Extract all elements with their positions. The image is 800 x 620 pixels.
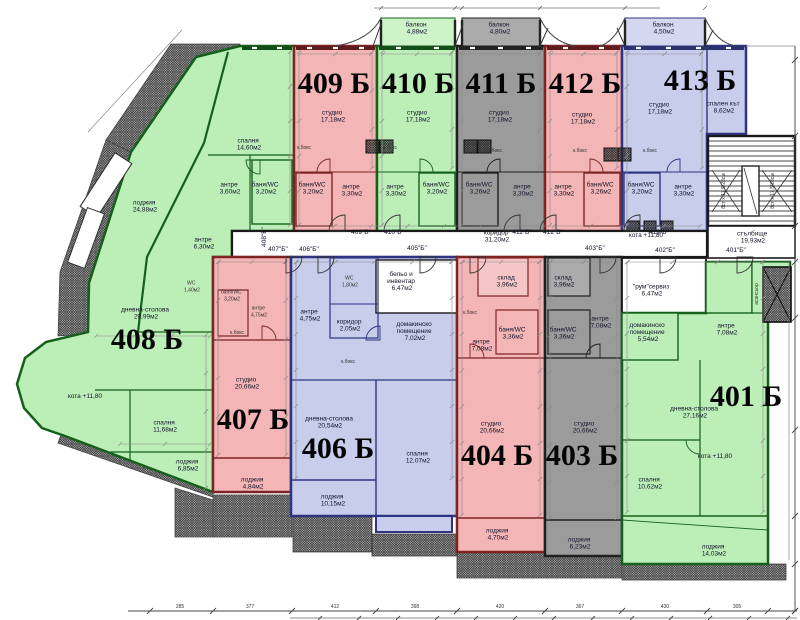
svg-text:лоджия 4,70м2: лоджия 4,70м2 [486, 528, 510, 542]
svg-text:студио 17,18м2: студио 17,18м2 [488, 110, 513, 124]
svg-text:420: 420 [496, 604, 505, 610]
svg-text:спалня 14,60м2: спалня 14,60м2 [237, 138, 262, 152]
svg-text:склад 3,96м2: склад 3,96м2 [554, 275, 575, 289]
svg-text:баня/WC 3,20м2: баня/WC 3,20м2 [423, 181, 452, 196]
svg-text:коридор 31,20м2: коридор 31,20м2 [484, 230, 511, 244]
svg-text:412"Б": 412"Б" [543, 229, 563, 236]
svg-text:410 Б: 410 Б [382, 67, 454, 100]
svg-text:8ст х 17,5/28см: 8ст х 17,5/28см [770, 173, 776, 209]
svg-text:студио 20,66м2: студио 20,66м2 [573, 421, 598, 435]
svg-text:антре 7,08м2: антре 7,08м2 [717, 323, 738, 337]
svg-text:лоджия 6,85м2: лоджия 6,85м2 [176, 459, 200, 473]
svg-text:398: 398 [411, 604, 420, 610]
svg-text:баня/WC 3,20м2: баня/WC 3,20м2 [221, 290, 243, 303]
svg-text:баня/WC 3,20м2: баня/WC 3,20м2 [252, 181, 281, 196]
svg-text:лоджия 10,15м2: лоджия 10,15м2 [321, 494, 346, 508]
svg-text:409 Б: 409 Б [298, 67, 370, 100]
svg-text:балкон 4,50м2: балкон 4,50м2 [653, 21, 676, 36]
svg-text:410"Б": 410"Б" [384, 229, 404, 236]
svg-text:баня/WC 3,26м2: баня/WC 3,26м2 [466, 181, 495, 196]
svg-text:коридор 2,05м2: коридор 2,05м2 [337, 319, 364, 333]
svg-text:антре 3,60м2: антре 3,60м2 [220, 182, 241, 196]
svg-text:кота +11,80: кота +11,80 [68, 393, 103, 400]
svg-text:409"Б": 409"Б" [351, 229, 371, 236]
svg-text:к.бокс: к.бокс [488, 148, 502, 154]
svg-text:антре 3,30м2: антре 3,30м2 [554, 184, 575, 198]
svg-text:студио 17,18м2: студио 17,18м2 [321, 110, 346, 124]
svg-text:412 Б: 412 Б [549, 67, 621, 100]
svg-text:студио 17,18м2: студио 17,18м2 [648, 102, 673, 116]
svg-text:к.бокс: к.бокс [573, 148, 587, 154]
svg-text:367: 367 [576, 604, 585, 610]
svg-text:спалня 10,62м2: спалня 10,62м2 [638, 477, 663, 491]
svg-text:студио 17,18м2: студио 17,18м2 [406, 110, 431, 124]
svg-text:студио 20,66м2: студио 20,66м2 [480, 421, 505, 435]
svg-text:балкон 4,88м2: балкон 4,88м2 [406, 21, 429, 36]
svg-text:стълбище 19,93м2: стълбище 19,93м2 [737, 230, 769, 245]
svg-text:406"Б": 406"Б" [299, 246, 319, 253]
svg-text:кота +11,80: кота +11,80 [698, 453, 733, 460]
svg-text:401 Б: 401 Б [710, 380, 782, 413]
svg-text:305: 305 [733, 604, 742, 610]
svg-text:антре 4,75м2: антре 4,75м2 [251, 306, 267, 319]
svg-text:403"Б": 403"Б" [585, 245, 605, 252]
svg-text:лоджия 14,03м2: лоджия 14,03м2 [702, 544, 727, 558]
svg-text:баня/WC 3,26м2: баня/WC 3,26м2 [587, 181, 616, 196]
svg-text:407 Б: 407 Б [217, 403, 289, 436]
svg-text:408"Б": 408"Б" [261, 226, 268, 246]
svg-text:401"Б": 401"Б" [726, 247, 746, 254]
svg-text:асансьор: асансьор [754, 283, 760, 305]
svg-text:антре 3,30м2: антре 3,30м2 [674, 184, 695, 198]
svg-text:406 Б: 406 Б [302, 432, 374, 465]
svg-text:к.бокс: к.бокс [643, 148, 657, 154]
svg-text:411 Б: 411 Б [466, 67, 537, 100]
svg-text:антре 4,75м2: антре 4,75м2 [300, 309, 321, 323]
svg-text:студио 17,18м2: студио 17,18м2 [571, 112, 596, 126]
svg-text:к.бокс: к.бокс [297, 145, 311, 151]
svg-text:408 Б: 408 Б [111, 323, 183, 356]
svg-text:412: 412 [331, 604, 340, 610]
svg-text:285: 285 [176, 604, 185, 610]
svg-text:спалня 11,68м2: спалня 11,68м2 [153, 420, 177, 434]
svg-text:к.бокс: к.бокс [383, 145, 397, 151]
svg-text:413 Б: 413 Б [664, 64, 736, 97]
svg-text:411"Б": 411"Б" [512, 229, 532, 236]
svg-text:склад 3,96м2: склад 3,96м2 [497, 275, 518, 289]
svg-text:баня/WC 3,20м2: баня/WC 3,20м2 [628, 181, 657, 196]
svg-text:404 Б: 404 Б [461, 439, 533, 472]
svg-text:лоджия 24,88м2: лоджия 24,88м2 [133, 200, 158, 214]
svg-text:377: 377 [246, 604, 255, 610]
svg-text:402"Б": 402"Б" [655, 247, 675, 254]
svg-text:антре 6,30м2: антре 6,30м2 [194, 237, 215, 251]
svg-text:баня/WC 3,20м2: баня/WC 3,20м2 [299, 181, 328, 196]
svg-text:к.бокс: к.бокс [341, 359, 355, 365]
svg-text:баня/WC 3,36м2: баня/WC 3,36м2 [550, 326, 579, 341]
svg-text:антре 7,08м2: антре 7,08м2 [591, 316, 612, 330]
svg-text:413"Б": 413"Б" [649, 229, 669, 236]
svg-text:к.бокс: к.бокс [230, 330, 244, 336]
svg-text:лоджия 6,23м2: лоджия 6,23м2 [568, 537, 592, 551]
svg-text:к.бокс: к.бокс [463, 310, 477, 316]
svg-text:лоджия 4,84м2: лоджия 4,84м2 [241, 477, 265, 491]
svg-text:балкон 4,80м2: балкон 4,80м2 [489, 21, 512, 36]
svg-text:антре 3,30м2: антре 3,30м2 [342, 184, 363, 198]
svg-text:403 Б: 403 Б [546, 439, 618, 472]
svg-text:8ст х 17,5/28см: 8ст х 17,5/28см [721, 173, 727, 209]
svg-text:студио 20,66м2: студио 20,66м2 [235, 377, 260, 391]
svg-text:антре 3,30м2: антре 3,30м2 [386, 184, 407, 198]
svg-text:антре 3,30м2: антре 3,30м2 [513, 184, 534, 198]
svg-text:407"Б": 407"Б" [268, 246, 288, 253]
svg-text:спалня 12,07м2: спалня 12,07м2 [406, 451, 431, 465]
svg-text:баня/WC 3,36м2: баня/WC 3,36м2 [499, 326, 528, 341]
svg-text:430: 430 [661, 604, 670, 610]
svg-text:антре 7,08м2: антре 7,08м2 [472, 339, 493, 353]
svg-text:405"Б": 405"Б" [407, 245, 427, 252]
